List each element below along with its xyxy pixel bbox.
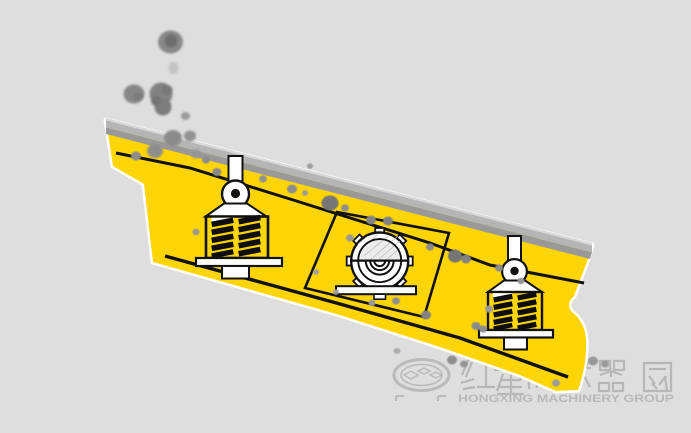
svg-text:HONGXING MACHINERY GROUP: HONGXING MACHINERY GROUP (458, 393, 674, 405)
